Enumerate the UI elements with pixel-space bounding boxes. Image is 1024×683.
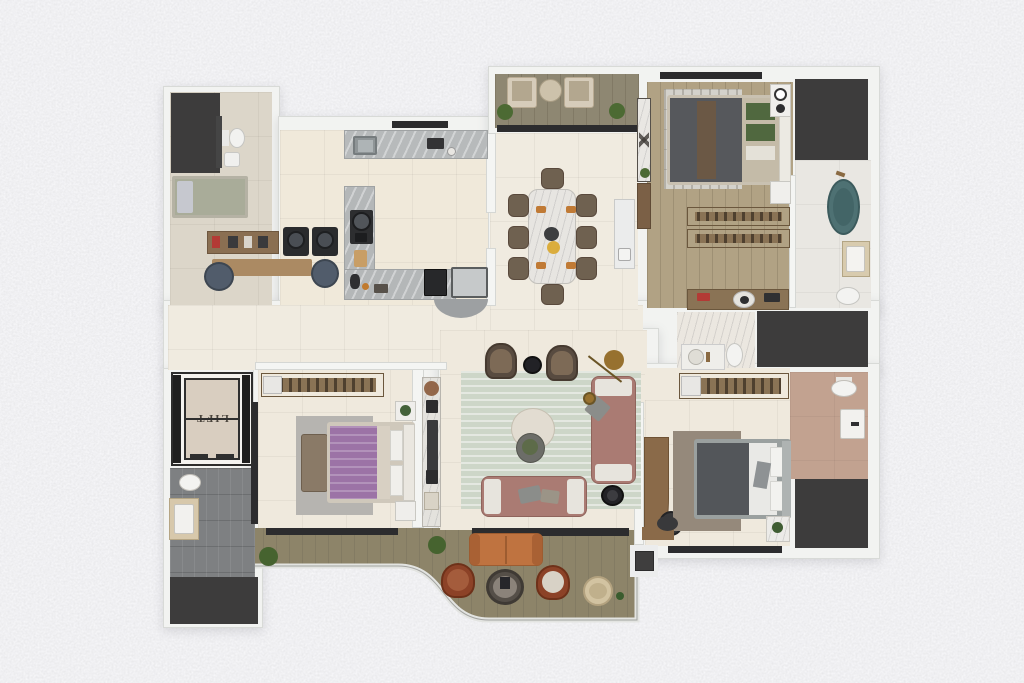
brownbath-faucet (851, 422, 859, 426)
washer-b-drum (316, 231, 334, 249)
ubalcony-chair-b-cushion (569, 81, 589, 101)
bath-gray-toilet (179, 474, 201, 491)
balcony-plant-dot (616, 592, 624, 600)
shelf-item-dark1 (228, 236, 238, 248)
shelf-item-light (244, 236, 252, 248)
bed2-pillow-b (390, 465, 403, 496)
kitchen-tray (374, 284, 388, 293)
bed2-bench (301, 434, 328, 492)
bathtub-inner (833, 188, 854, 226)
bed2-fold (377, 426, 390, 499)
dining-chair-head-top (541, 168, 564, 189)
living-armchair-a-cushion (490, 349, 512, 373)
kitchen-cutting-board (354, 250, 367, 267)
lift-door-line (186, 418, 238, 420)
kitchen-oven (424, 269, 447, 296)
stool-blue-b (311, 259, 339, 288)
wall-hall-bed2 (255, 362, 447, 370)
bed3-headboard (782, 441, 791, 517)
bath-gray-sink (174, 504, 194, 534)
ubalcony-plant-b (609, 103, 625, 119)
dining-chair-r2 (576, 226, 597, 249)
window-bed3-bottom (668, 546, 782, 553)
dining-chair-r3 (576, 257, 597, 280)
powder-faucet (706, 352, 710, 362)
tv-unit-speaker-b (426, 470, 438, 484)
balcony-chair-cream-cushion (589, 583, 607, 599)
master-wood-cabinet (637, 183, 651, 229)
toilet-maid-tank (222, 130, 229, 146)
bed3-nightstand-plant (772, 522, 783, 533)
dining-chair-head-bottom (541, 284, 564, 305)
tv-unit-shelf (424, 492, 439, 510)
balcony-duct (635, 551, 654, 571)
dining-place-b (566, 206, 576, 213)
living-coffee-plant (522, 439, 538, 455)
powder-basin (688, 349, 704, 365)
master-clothes-rack-1 (687, 207, 790, 226)
master-dresser-item-red (697, 293, 710, 301)
lift-rail-left (173, 375, 181, 463)
shelf-item-red (212, 236, 220, 248)
ubalcony-chair-a-cushion (512, 81, 532, 101)
master-nightstand-bottom (770, 181, 791, 204)
balcony-plant-a (259, 547, 278, 566)
kitchen-appliance-top (427, 138, 444, 149)
bed2-nightstand-plant (400, 405, 411, 416)
window-bed2-bottom (266, 528, 398, 535)
bed-maid-pillow (177, 181, 193, 213)
living-floor-lamp-base (583, 392, 596, 405)
dining-chair-l3 (508, 257, 529, 280)
kitchen-hob-burner (352, 212, 371, 231)
master-lamp (774, 88, 787, 101)
master-vanity-mirror (740, 296, 749, 304)
brownbath-toilet (831, 380, 857, 397)
tv-unit-speaker-a (426, 400, 438, 413)
void-duct-bed3 (795, 479, 868, 548)
living-sofa-pillow-b (540, 489, 560, 504)
bed2-headboard (403, 424, 415, 501)
living-floor-lamp-head (604, 350, 624, 370)
powder-toilet (726, 343, 743, 367)
bed2-pillow-a (390, 430, 403, 461)
dining-chair-r1 (576, 194, 597, 217)
dining-place-d (566, 262, 576, 269)
kitchen-hob-small (355, 233, 367, 242)
bed3-duvet (697, 443, 749, 515)
dining-place-a (536, 206, 546, 213)
balcony-armchair-b-throw (542, 571, 564, 593)
kitchen-fridge (451, 267, 488, 298)
balcony-plant-b (428, 536, 446, 554)
balcony-sofa-arm-l (470, 534, 480, 565)
bed2-nightstand-b (395, 501, 416, 521)
bed2-rack-box (263, 376, 282, 394)
master-dresser-item-dark (764, 293, 780, 302)
corridor-rack-box (681, 376, 701, 396)
foyer-round-table (657, 516, 678, 531)
dining-chair-l1 (508, 194, 529, 217)
dining-gold-flower (547, 241, 560, 254)
balcony-sofa-seam (505, 536, 507, 564)
ubalcony-table (539, 79, 562, 102)
bed2-duvet-purple (330, 426, 377, 499)
window-upper-balcony-slider (497, 125, 638, 132)
master-pillow-green-b (746, 124, 775, 141)
lift-mark-b (216, 454, 234, 458)
void-duct-bottom-left (170, 577, 258, 624)
master-speaker (776, 104, 785, 113)
living-side-table-b-inner (607, 490, 618, 501)
living-sofa-right-cushion-t (595, 379, 632, 396)
master-bar-plant (640, 168, 650, 178)
void-duct-maid (171, 93, 220, 173)
balcony-sofa-arm-r (532, 534, 542, 565)
mbath-toilet (836, 287, 860, 305)
living-side-table-top (523, 356, 542, 374)
dining-sideboard-sink (618, 248, 631, 261)
lift-rail-right (242, 375, 250, 463)
void-duct-mid-right (757, 311, 868, 367)
apartment-plan: LIFT (0, 0, 1024, 683)
living-sofa-right-cushion-b (595, 464, 632, 481)
master-pillow-white (746, 146, 775, 160)
kitchen-kettle (447, 147, 456, 156)
toilet-maid-bowl (229, 128, 245, 148)
stool-blue-a (204, 262, 234, 291)
tv-screen (427, 420, 438, 472)
master-bar-xrack (639, 118, 649, 162)
master-clothes-rack-2 (687, 229, 790, 248)
mbath-basin (846, 246, 865, 272)
shelf-item-dark2 (258, 236, 268, 248)
floor-master-bath (795, 160, 871, 308)
washer-a-drum (287, 231, 305, 249)
master-bed-runner (697, 101, 716, 179)
dining-chair-l2 (508, 226, 529, 249)
living-sofa-bottom-cushion-r (567, 479, 584, 514)
balcony-armchair-a-cushion (447, 569, 469, 591)
sink-maid (224, 152, 240, 167)
void-duct-master-bath (795, 79, 868, 160)
kitchen-spice (362, 283, 369, 290)
floor-plan-scene: LIFT (0, 0, 1024, 683)
ubalcony-plant-a (497, 104, 513, 120)
lift-mark-a (190, 454, 208, 458)
living-sofa-bottom-cushion-l (484, 479, 501, 514)
kitchen-jar (350, 274, 360, 289)
window-master (660, 72, 762, 79)
window-kitchen (392, 121, 448, 128)
kitchen-sink-basin (358, 140, 373, 152)
dining-centerpiece (544, 227, 559, 241)
living-armchair-b-cushion (551, 351, 573, 375)
balcony-table-item (500, 577, 510, 589)
dining-place-c (536, 262, 546, 269)
tv-unit-flower (424, 381, 439, 396)
